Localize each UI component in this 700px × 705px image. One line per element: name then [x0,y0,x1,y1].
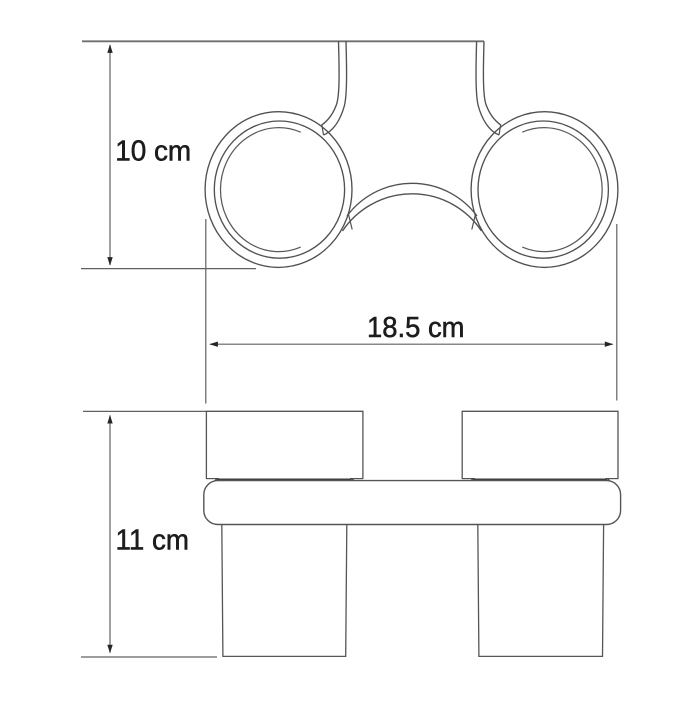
svg-text:10 cm: 10 cm [115,136,191,168]
svg-text:11 cm: 11 cm [116,524,190,556]
svg-text:18.5 cm: 18.5 cm [367,312,465,344]
